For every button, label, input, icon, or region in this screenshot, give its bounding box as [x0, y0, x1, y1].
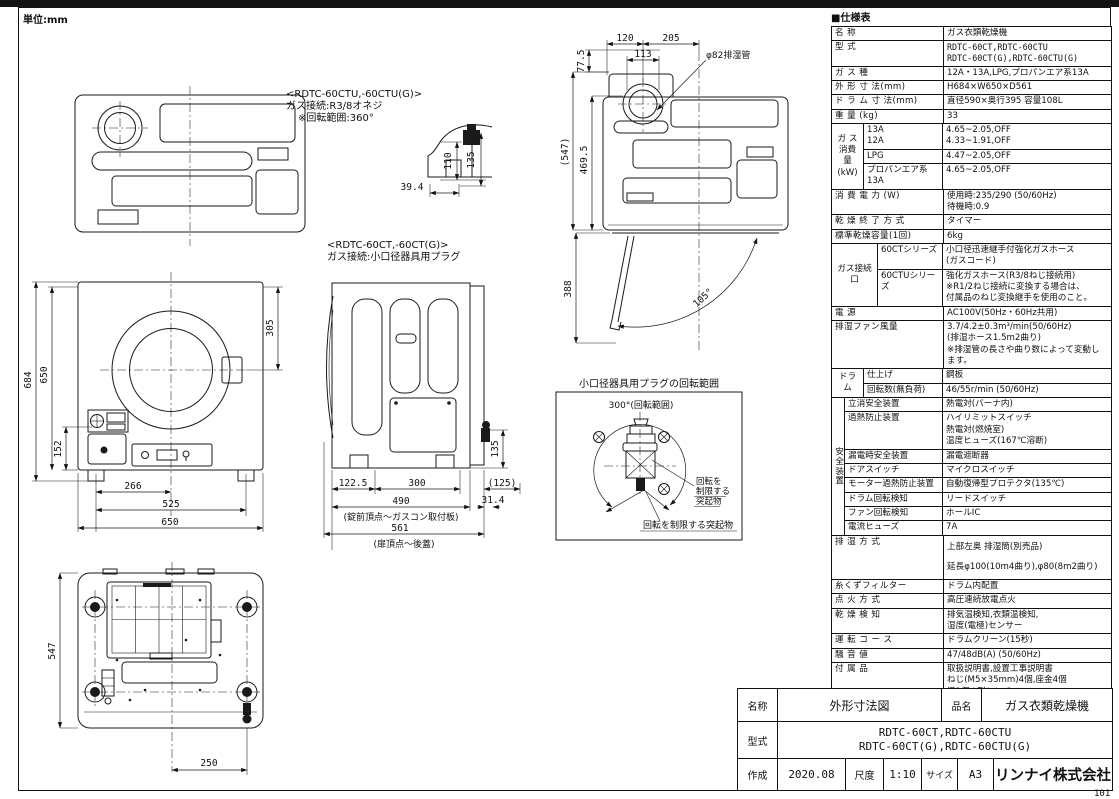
- drawing-name-value: 外形寸法図: [778, 689, 942, 721]
- spec-sub-label: プロパンエア系13A: [864, 164, 943, 189]
- spec-value: AC100V(50Hz・60Hz共用): [944, 307, 1111, 320]
- spec-subrow: 13A 12A4.65~2.05,OFF 4.33~1.91,OFF: [864, 124, 1111, 149]
- spec-label: 乾 燥 終 了 方 式: [832, 215, 944, 228]
- spec-row: 名 称ガス衣類乾燥機: [832, 27, 1111, 40]
- spec-value: タイマー: [944, 215, 1111, 228]
- dim-135-side: 135: [490, 440, 501, 457]
- side-gas-note: ガス接続:小口径器具用プラグ: [327, 250, 460, 263]
- limit-label-line1: 回転を: [696, 477, 722, 487]
- spec-table: 名 称ガス衣類乾燥機型 式RDTC-60CT,RDTC-60CTU RDTC-6…: [831, 26, 1112, 767]
- spec-label: 乾 燥 検 知: [832, 609, 944, 634]
- spec-value: リードスイッチ: [943, 493, 1111, 506]
- spec-value: マイクロスイッチ: [943, 464, 1111, 477]
- spec-sub-label: ファン回転検知: [845, 507, 943, 520]
- spec-row: 型 式RDTC-60CT,RDTC-60CTU RDTC-60CT(G),RDT…: [832, 40, 1111, 65]
- title-block: 名称 外形寸法図 品名 ガス衣類乾燥機 型式 RDTC-60CT,RDTC-60…: [737, 688, 1113, 791]
- dimension-drawings: <RDTC-60CTU,-60CTU(G)> ガス接続:R3/8オネジ ※回転範…: [0, 0, 830, 799]
- spec-label: 運 転 コ ー ス: [832, 634, 944, 647]
- spec-row: 糸くずフィルタードラム内配置: [832, 579, 1111, 593]
- screw-icon: [659, 432, 670, 443]
- spec-row: 騒 音 値47/48dB(A) (50/60Hz): [832, 648, 1111, 662]
- spec-sub-label: 過熱防止装置: [845, 412, 943, 448]
- spec-subrow: LPG4.47~2.05,OFF: [864, 149, 1111, 163]
- detail-model-note: <RDTC-60CTU,-60CTU(G)>: [286, 89, 422, 100]
- spec-value: ドラム内配置: [944, 580, 1111, 593]
- spec-row: 安全装置立消安全装置熱電対(バーナ内)過熱防止装置ハイリミットスイッチ 熱電対(…: [832, 397, 1111, 534]
- date-label: 作成: [738, 759, 778, 790]
- dim-39-4: 39.4: [401, 182, 424, 193]
- dim-305: 305: [265, 319, 276, 336]
- spec-group-label: ドラム: [832, 369, 864, 397]
- side-model-note: <RDTC-60CT,-60CT(G)>: [327, 240, 449, 251]
- spec-group-label: ガス接続口: [832, 244, 878, 306]
- limit-label-line3: 突起物: [696, 496, 722, 507]
- spec-value: 強化ガスホース(R3/8ねじ接続用) ※R1/2ねじ接続に変換する場合は、 付属…: [943, 270, 1111, 306]
- connector-detail: <RDTC-60CTU,-60CTU(G)> ガス接続:R3/8オネジ ※回転範…: [286, 89, 492, 197]
- spec-value: 7A: [943, 521, 1111, 534]
- spec-subrows: 立消安全装置熱電対(バーナ内)過熱防止装置ハイリミットスイッチ 熱電対(燃焼室)…: [845, 398, 1111, 534]
- dim-125: (125): [488, 478, 517, 489]
- spec-table-title: ■仕様表: [831, 9, 1112, 24]
- dim-113: 113: [634, 49, 651, 60]
- title-block-row-meta: 作成 2020.08 尺度 1:10 サイズ A3 リンナイ株式会社: [738, 758, 1112, 790]
- spec-sub-label: 立消安全装置: [845, 398, 943, 411]
- spec-subrows: 13A 12A4.65~2.05,OFF 4.33~1.91,OFFLPG4.4…: [864, 124, 1111, 189]
- dim-250: 250: [200, 758, 217, 769]
- spec-value: 4.47~2.05,OFF: [943, 150, 1111, 163]
- spec-subrows: 仕上げ鋼板回転数(無負荷)46/55r/min (50/60Hz): [864, 369, 1111, 397]
- spec-label: 排湿ファン風量: [832, 321, 944, 368]
- spec-sub-label: 電流ヒューズ: [845, 521, 943, 534]
- dim-110: 110: [443, 152, 454, 169]
- spec-row: 外 形 寸 法(mm)H684×W650×D561: [832, 80, 1111, 94]
- spec-subrow: モーター過熱防止装置自動復帰型プロテクタ(135℃): [845, 477, 1111, 491]
- spec-subrow: ドラム回転検知リードスイッチ: [845, 492, 1111, 506]
- spec-label: ガ ス 種: [832, 67, 944, 80]
- spec-sub-label: 60CTシリーズ: [878, 244, 943, 269]
- spec-row: 乾 燥 終 了 方 式タイマー: [832, 214, 1111, 228]
- dim-77-5: 77.5: [576, 50, 587, 73]
- spec-row: ガ ス 種12A・13A,LPG,プロパンエア系13A: [832, 66, 1111, 80]
- open-view: 105° 77.5 120 205 113 φ82排湿管 (547) 469.5…: [560, 33, 788, 350]
- spec-subrow: 回転数(無負荷)46/55r/min (50/60Hz): [864, 383, 1111, 397]
- dim-300: 300: [408, 478, 425, 489]
- date-value: 2020.08: [778, 759, 846, 790]
- page-number: 101: [1094, 789, 1110, 799]
- dim-266: 266: [124, 481, 141, 492]
- spec-value: 直径590×奥行395 容量108L: [944, 95, 1111, 108]
- spec-value: ドラムクリーン(15秒): [944, 634, 1111, 647]
- dim-490-label: (錠前頂点〜ガスコン取付板): [343, 511, 458, 523]
- spec-subrow: 漏電時安全装置漏電遮断器: [845, 449, 1111, 463]
- spec-label: 排 湿 方 式: [832, 536, 944, 579]
- size-value: A3: [958, 759, 994, 790]
- dim-547-paren: (547): [560, 138, 571, 167]
- dim-205: 205: [662, 33, 679, 44]
- spec-label: 消 費 電 力 (W): [832, 190, 944, 215]
- spec-label: 電 源: [832, 307, 944, 320]
- dim-561: 561: [391, 523, 408, 534]
- dim-547: 547: [47, 642, 58, 659]
- dim-650-height: 650: [39, 366, 50, 383]
- company-name: リンナイ株式会社: [994, 759, 1112, 790]
- spec-value: 3.7/4.2±0.3m³/min(50/60Hz) (排湿ホース1.5m2曲り…: [944, 321, 1111, 368]
- dim-122-5: 122.5: [339, 478, 368, 489]
- dim-31-4: 31.4: [482, 495, 505, 506]
- dim-105: 105°: [691, 286, 715, 309]
- plug-rotation-diagram: 小口径器具用プラグの回転範囲 300°(回転範囲) 回転を 制限する: [556, 377, 742, 540]
- spec-label: 糸くずフィルター: [832, 580, 944, 593]
- spec-row: ガ ス 消費量 (kW)13A 12A4.65~2.05,OFF 4.33~1.…: [832, 123, 1111, 189]
- top-view: [75, 86, 305, 246]
- spec-subrow: 仕上げ鋼板: [864, 369, 1111, 382]
- spec-value: 排気温検知,衣類温検知, 湿度(電極)センサー: [944, 609, 1111, 634]
- model-value: RDTC-60CT,RDTC-60CTU RDTC-60CT(G),RDTC-6…: [778, 722, 1112, 758]
- dim-650-width: 650: [161, 517, 178, 528]
- spec-row: ド ラ ム 寸 法(mm)直径590×奥行395 容量108L: [832, 94, 1111, 108]
- spec-row: 消 費 電 力 (W)使用時:235/290 (50/60Hz) 待機時:0.9: [832, 189, 1111, 215]
- spec-row: 重 量 (kg)33: [832, 109, 1111, 123]
- spec-sub-label: LPG: [864, 150, 943, 163]
- dim-525: 525: [162, 499, 179, 510]
- spec-row: 標準乾燥容量(1回)6kg: [832, 229, 1111, 243]
- spec-label: 騒 音 値: [832, 649, 944, 662]
- spec-label: 点 火 方 式: [832, 594, 944, 607]
- spec-row: ドラム仕上げ鋼板回転数(無負荷)46/55r/min (50/60Hz): [832, 368, 1111, 397]
- spec-value: 使用時:235/290 (50/60Hz) 待機時:0.9: [944, 190, 1111, 215]
- scale-value: 1:10: [884, 759, 922, 790]
- spec-value: 12A・13A,LPG,プロパンエア系13A: [944, 67, 1111, 80]
- product-name-value: ガス衣類乾燥機: [982, 689, 1112, 721]
- spec-sub-label: 13A 12A: [864, 124, 943, 149]
- dim-135-detail: 135: [466, 151, 477, 168]
- spec-subrow: プロパンエア系13A4.65~2.05,OFF: [864, 163, 1111, 189]
- spec-value: 4.65~2.05,OFF 4.33~1.91,OFF: [943, 124, 1111, 149]
- spec-row: 排 湿 方 式上部左奥 排湿筒(別売品) 延長φ100(10m4曲り),φ80(…: [832, 535, 1111, 579]
- spec-value: 47/48dB(A) (50/60Hz): [944, 649, 1111, 662]
- dim-684: 684: [23, 371, 34, 388]
- spec-subrow: 60CTUシリーズ強化ガスホース(R3/8ねじ接続用) ※R1/2ねじ接続に変換…: [878, 269, 1111, 306]
- dim-561-label: (扉頂点〜後蓋): [373, 538, 434, 550]
- spec-row: 運 転 コ ー スドラムクリーン(15秒): [832, 633, 1111, 647]
- detail-gas-note: ガス接続:R3/8オネジ: [286, 99, 382, 112]
- spec-row: ガス接続口60CTシリーズ小口径迅速継手付強化ガスホース (ガスコード)60CT…: [832, 243, 1111, 306]
- screw-icon: [594, 432, 605, 443]
- product-label: 品名: [942, 689, 982, 721]
- spec-sub-label: ドアスイッチ: [845, 464, 943, 477]
- side-view: <RDTC-60CT,-60CT(G)> ガス接続:小口径器具用プラグ 135 …: [324, 240, 520, 550]
- scale-label: 尺度: [846, 759, 884, 790]
- plug-range-label: 300°(回転範囲): [609, 399, 674, 411]
- spec-value: 46/55r/min (50/60Hz): [943, 384, 1111, 397]
- spec-group-label: 安全装置: [832, 398, 845, 534]
- spec-label: 型 式: [832, 41, 944, 65]
- exhaust-pipe-label: φ82排湿管: [706, 49, 750, 61]
- dim-120: 120: [616, 33, 633, 44]
- spec-value: ハイリミットスイッチ 熱電対(燃焼室) 温度ヒューズ(167℃溶断): [943, 412, 1111, 448]
- spec-sub-label: モーター過熱防止装置: [845, 478, 943, 491]
- name-label: 名称: [738, 689, 778, 721]
- spec-sub-label: 60CTUシリーズ: [878, 270, 943, 306]
- spec-subrows: 60CTシリーズ小口径迅速継手付強化ガスホース (ガスコード)60CTUシリーズ…: [878, 244, 1111, 306]
- detail-rotation-note: ※回転範囲:360°: [298, 111, 374, 124]
- spec-value: RDTC-60CT,RDTC-60CTU RDTC-60CT(G),RDTC-6…: [944, 41, 1111, 65]
- spec-sub-label: 回転数(無負荷): [864, 384, 943, 397]
- spec-label: 外 形 寸 法(mm): [832, 81, 944, 94]
- spec-value: 6kg: [944, 230, 1111, 243]
- spec-sub-label: ドラム回転検知: [845, 493, 943, 506]
- spec-subrow: 電流ヒューズ7A: [845, 520, 1111, 534]
- dim-388: 388: [563, 280, 574, 297]
- spec-value: 自動復帰型プロテクタ(135℃): [943, 478, 1111, 491]
- spec-value: H684×W650×D561: [944, 81, 1111, 94]
- spec-value: 漏電遮断器: [943, 450, 1111, 463]
- title-block-row-model: 型式 RDTC-60CT,RDTC-60CTU RDTC-60CT(G),RDT…: [738, 721, 1112, 758]
- dim-490: 490: [392, 496, 409, 507]
- spec-label: 名 称: [832, 27, 944, 40]
- spec-value: ガス衣類乾燥機: [944, 27, 1111, 40]
- spec-value: 33: [944, 110, 1111, 123]
- dim-152: 152: [53, 440, 64, 457]
- spec-label: ド ラ ム 寸 法(mm): [832, 95, 944, 108]
- spec-value: ホールIC: [943, 507, 1111, 520]
- spec-panel: ■仕様表 名 称ガス衣類乾燥機型 式RDTC-60CT,RDTC-60CTU R…: [831, 9, 1112, 783]
- spec-row: 乾 燥 検 知排気温検知,衣類温検知, 湿度(電極)センサー: [832, 608, 1111, 634]
- front-view: 684 650 305 152 266 525 650: [23, 272, 283, 532]
- limit-label-line2: 制限する: [696, 486, 730, 497]
- spec-group-label: ガ ス 消費量 (kW): [832, 124, 864, 189]
- spec-value: 熱電対(バーナ内): [943, 398, 1111, 411]
- size-label: サイズ: [922, 759, 958, 790]
- spec-subrow: 過熱防止装置ハイリミットスイッチ 熱電対(燃焼室) 温度ヒューズ(167℃溶断): [845, 411, 1111, 448]
- model-label: 型式: [738, 722, 778, 758]
- bottom-view: 547 250: [47, 562, 263, 775]
- spec-value: 小口径迅速継手付強化ガスホース (ガスコード): [943, 244, 1111, 269]
- spec-subrow: ファン回転検知ホールIC: [845, 506, 1111, 520]
- spec-subrow: 立消安全装置熱電対(バーナ内): [845, 398, 1111, 411]
- spec-sub-label: 仕上げ: [864, 369, 943, 382]
- plug-diagram-title: 小口径器具用プラグの回転範囲: [579, 377, 719, 390]
- spec-label: 標準乾燥容量(1回): [832, 230, 944, 243]
- title-block-row-name: 名称 外形寸法図 品名 ガス衣類乾燥機: [738, 689, 1112, 721]
- spec-subrow: ドアスイッチマイクロスイッチ: [845, 463, 1111, 477]
- spec-sub-label: 漏電時安全装置: [845, 450, 943, 463]
- spec-subrow: 60CTシリーズ小口径迅速継手付強化ガスホース (ガスコード): [878, 244, 1111, 269]
- limit-label-bottom: 回転を制限する突起物: [643, 519, 733, 531]
- spec-value: 高圧連続放電点火: [944, 594, 1111, 607]
- screw-icon: [659, 484, 670, 495]
- spec-row: 点 火 方 式高圧連続放電点火: [832, 593, 1111, 607]
- spec-value: 上部左奥 排湿筒(別売品) 延長φ100(10m4曲り),φ80(8m2曲り): [944, 536, 1111, 579]
- spec-row: 電 源AC100V(50Hz・60Hz共用): [832, 306, 1111, 320]
- spec-value: 4.65~2.05,OFF: [943, 164, 1111, 189]
- dim-469-5: 469.5: [579, 146, 590, 175]
- spec-row: 排湿ファン風量3.7/4.2±0.3m³/min(50/60Hz) (排湿ホース…: [832, 320, 1111, 368]
- spec-value: 鋼板: [943, 369, 1111, 382]
- spec-label: 重 量 (kg): [832, 110, 944, 123]
